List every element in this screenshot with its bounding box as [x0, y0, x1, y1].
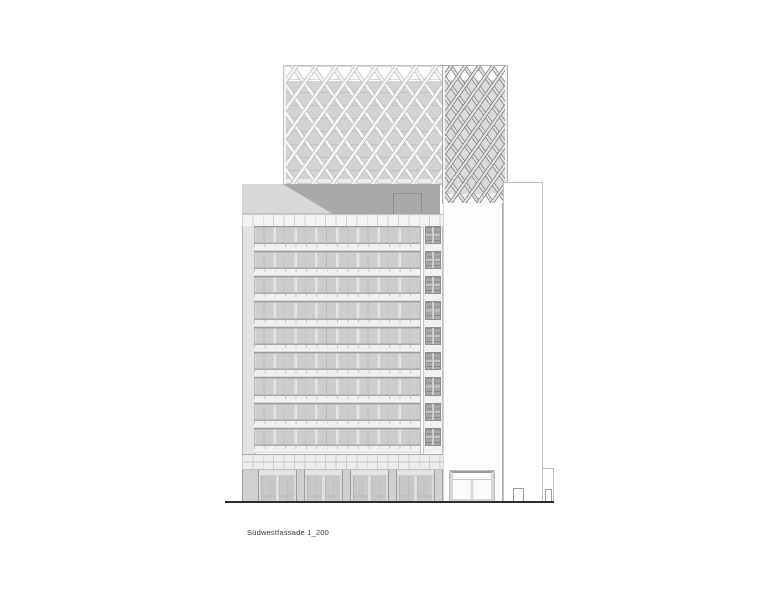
- crown-diagrid-right: [443, 66, 507, 203]
- pier: [342, 470, 351, 502]
- spandrel-band: [254, 294, 420, 301]
- penthouse-band: [242, 184, 441, 214]
- spandrel-band: [254, 269, 420, 276]
- pier: [296, 470, 305, 502]
- core-cell: [424, 377, 443, 402]
- floor-row: [254, 352, 420, 377]
- elevation-drawing-canvas: Südwestfassade 1_200: [0, 0, 780, 599]
- corner-pier: [242, 470, 260, 502]
- louver-panel: [425, 251, 441, 269]
- rooftop-access-box: [393, 193, 422, 215]
- floor-row: [254, 301, 420, 326]
- floor-row: [254, 226, 420, 251]
- spandrel-band: [254, 396, 420, 403]
- core-cell: [424, 352, 443, 377]
- entrance-bay: [305, 470, 351, 502]
- window-band: [254, 251, 420, 269]
- spandrel-band: [254, 446, 420, 453]
- entrance-door: [305, 476, 342, 502]
- entrance-bays: [259, 470, 443, 502]
- window-band: [254, 377, 420, 395]
- floor-row: [254, 377, 420, 402]
- entrance-bay: [351, 470, 397, 502]
- spandrel-band: [254, 345, 420, 352]
- facade-floors: [254, 226, 421, 454]
- drawing-caption: Südwestfassade 1_200: [247, 528, 329, 537]
- louver-panel: [425, 428, 441, 446]
- entrance-opening: [259, 470, 296, 502]
- core-cell: [424, 301, 443, 326]
- louver-panel: [425, 377, 441, 395]
- spandrel-band: [254, 244, 420, 251]
- entrance-door: [351, 476, 388, 502]
- louver-panel: [425, 352, 441, 370]
- pier: [388, 470, 397, 502]
- floor-row: [254, 251, 420, 276]
- ground-line: [225, 501, 554, 503]
- floor-row: [254, 403, 420, 428]
- window-band: [254, 327, 420, 345]
- louver-panel: [425, 403, 441, 421]
- spandrel-band: [254, 421, 420, 428]
- side-door-leaves: [453, 480, 491, 499]
- louver-panel: [425, 301, 441, 319]
- floor-row: [254, 276, 420, 301]
- crown-diagrid-left: [284, 66, 448, 184]
- spandrel-band: [254, 320, 420, 327]
- entrance-door: [397, 476, 434, 502]
- entrance-opening: [397, 470, 434, 502]
- roof-slope-plane: [242, 184, 333, 214]
- floor-row: [254, 428, 420, 453]
- core-cell: [424, 428, 443, 453]
- entrance-zone: [242, 470, 444, 502]
- louver-panel: [425, 226, 441, 244]
- pier: [434, 470, 443, 502]
- side-entrance-door: [450, 471, 494, 502]
- window-band: [254, 226, 420, 244]
- entrance-bay: [259, 470, 305, 502]
- core-cell: [424, 403, 443, 428]
- entrance-bay: [397, 470, 443, 502]
- entrance-door: [259, 476, 296, 502]
- louver-panel: [425, 276, 441, 294]
- spandrel-band: [254, 370, 420, 377]
- side-wing-wall: [443, 203, 503, 502]
- window-band: [254, 403, 420, 421]
- annex-opening: [545, 489, 552, 501]
- side-door-transom: [453, 473, 491, 480]
- core-cell: [424, 226, 443, 251]
- core-cell: [424, 327, 443, 352]
- mezzanine-band: [242, 454, 444, 471]
- entrance-opening: [351, 470, 388, 502]
- service-core-column: [423, 226, 444, 454]
- core-cell: [424, 251, 443, 276]
- window-band: [254, 428, 420, 446]
- window-band: [254, 301, 420, 319]
- floor-row: [254, 327, 420, 352]
- core-cell: [424, 276, 443, 301]
- ground-level-opening: [513, 488, 524, 502]
- rear-wall-panel: [503, 182, 544, 502]
- louver-panel: [425, 327, 441, 345]
- window-band: [254, 276, 420, 294]
- entrance-opening: [305, 470, 342, 502]
- window-band: [254, 352, 420, 370]
